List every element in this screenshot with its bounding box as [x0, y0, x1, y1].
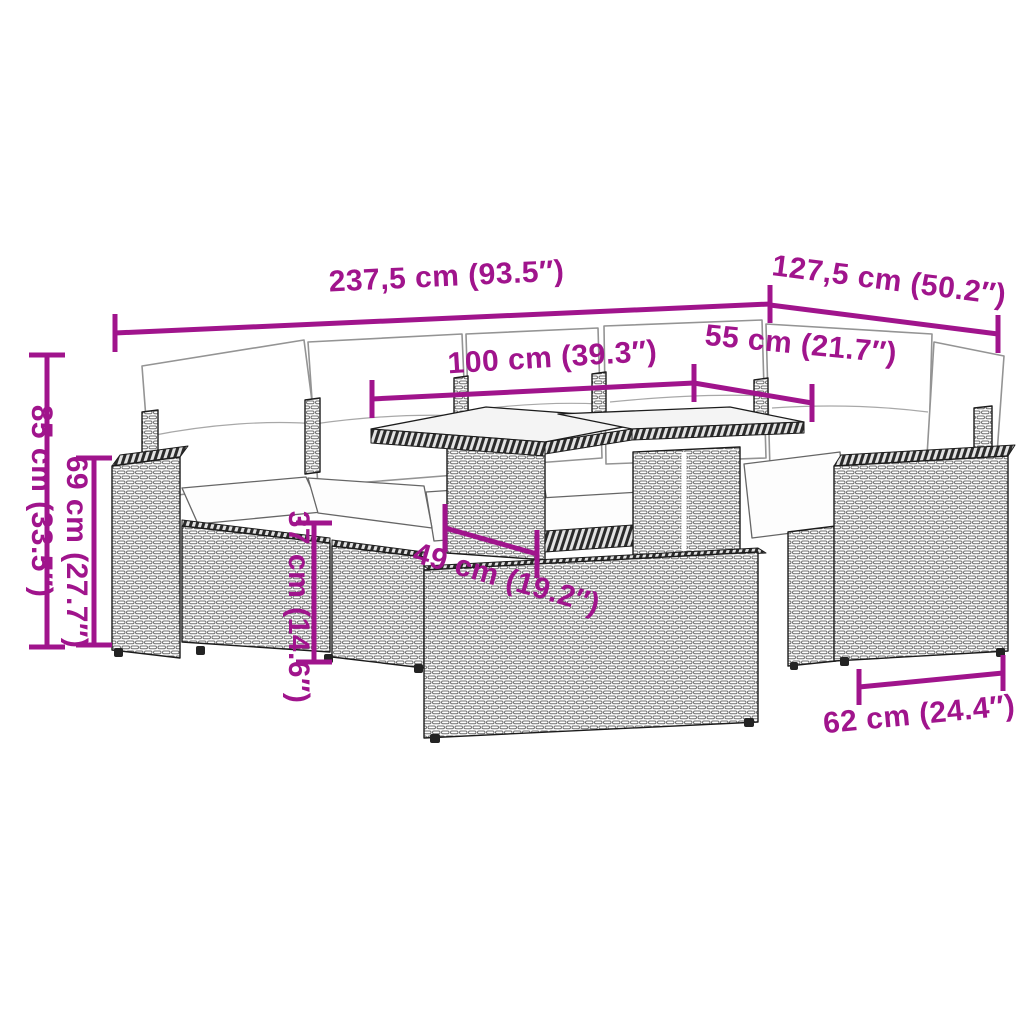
product-dimension-diagram: 237,5 cm (93.5″) 127,5 cm (50.2″) 100 cm… [0, 0, 1024, 1024]
dim-module-depth: 62 cm (24.4″) [822, 655, 1017, 740]
right-armrest [834, 456, 1008, 661]
left-armrest [112, 457, 180, 658]
pillow [308, 334, 468, 486]
dim-seat-height-label: 37 cm (14.6″) [282, 511, 315, 704]
dim-total-height-label: 85 cm (33.5″) [25, 405, 58, 598]
dim-right-depth-label: 127,5 cm (50.2″) [770, 249, 1008, 312]
rattan-post [305, 398, 320, 474]
dim-armrest-height-label: 69 cm (27.7″) [60, 456, 93, 649]
furniture-illustration [112, 320, 1015, 743]
dim-module-depth-label: 62 cm (24.4″) [822, 689, 1017, 740]
dim-total-width-label: 237,5 cm (93.5″) [328, 254, 565, 298]
dim-total-height: 85 cm (33.5″) [25, 355, 65, 647]
diagram-canvas: 237,5 cm (93.5″) 127,5 cm (50.2″) 100 cm… [0, 0, 1024, 1024]
seat-box [788, 526, 836, 666]
dim-armrest-height: 69 cm (27.7″) [60, 456, 112, 649]
seat-cushion [744, 452, 847, 538]
rattan-post [592, 372, 606, 414]
